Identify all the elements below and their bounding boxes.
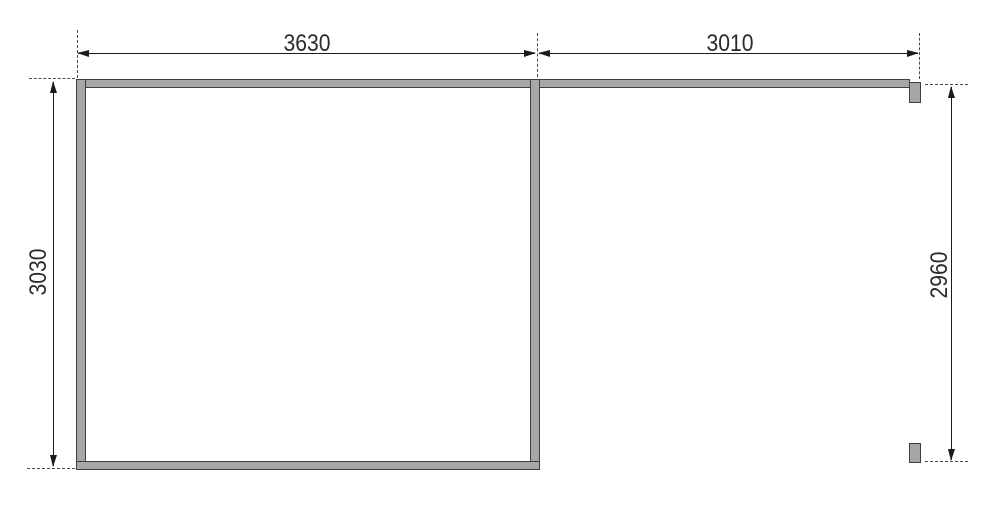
extension-line-left-bottom	[27, 468, 75, 469]
arrowhead-down-icon	[50, 455, 57, 467]
arrowhead-left-icon	[538, 50, 550, 57]
extension-line-right-top	[925, 84, 968, 85]
arrowhead-right-icon	[524, 50, 536, 57]
right-end-post-bottom	[909, 443, 921, 463]
dimension-label-right-height: 2960	[928, 252, 952, 299]
arrowhead-down-icon	[948, 449, 955, 461]
arrowhead-left-icon	[77, 50, 89, 57]
bottom-beam	[76, 461, 540, 470]
right-end-post-top	[909, 82, 921, 103]
extension-line-right-bottom	[925, 461, 968, 462]
top-beam	[76, 79, 910, 88]
arrowhead-up-icon	[50, 81, 57, 93]
arrowhead-up-icon	[948, 86, 955, 98]
arrowhead-right-icon	[907, 50, 919, 57]
extension-line-top-right	[919, 33, 920, 79]
drawing-canvas: 3630 3010 3030 2960	[0, 0, 1000, 518]
extension-line-left-top	[29, 78, 75, 79]
left-wall	[76, 79, 86, 470]
dimension-label-left-height: 3030	[27, 249, 51, 296]
center-wall	[530, 79, 540, 470]
dimension-line-left-height	[53, 82, 54, 466]
dimension-label-top-right-width: 3010	[707, 32, 754, 56]
dimension-label-top-left-width: 3630	[284, 32, 331, 56]
